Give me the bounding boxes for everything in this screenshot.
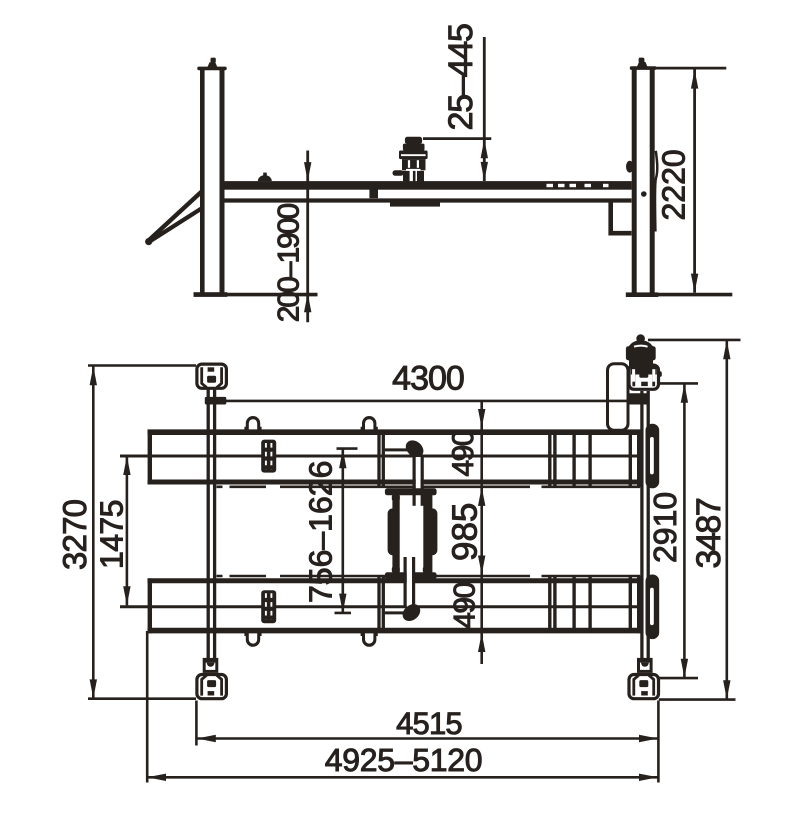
svg-text:3270: 3270 — [56, 499, 93, 570]
svg-text:985: 985 — [445, 503, 484, 561]
svg-text:3487: 3487 — [690, 498, 728, 568]
svg-text:4300: 4300 — [392, 360, 464, 398]
svg-text:4925–5120: 4925–5120 — [325, 742, 482, 778]
svg-text:1475: 1475 — [94, 500, 130, 569]
svg-text:2910: 2910 — [647, 492, 683, 563]
svg-text:490: 490 — [449, 582, 482, 628]
svg-text:756–1626: 756–1626 — [303, 461, 339, 603]
svg-text:2220: 2220 — [656, 149, 692, 220]
svg-text:4515: 4515 — [396, 706, 462, 741]
svg-text:200–1900: 200–1900 — [273, 204, 306, 323]
svg-text:490: 490 — [447, 430, 480, 476]
svg-text:25–445: 25–445 — [442, 24, 480, 131]
